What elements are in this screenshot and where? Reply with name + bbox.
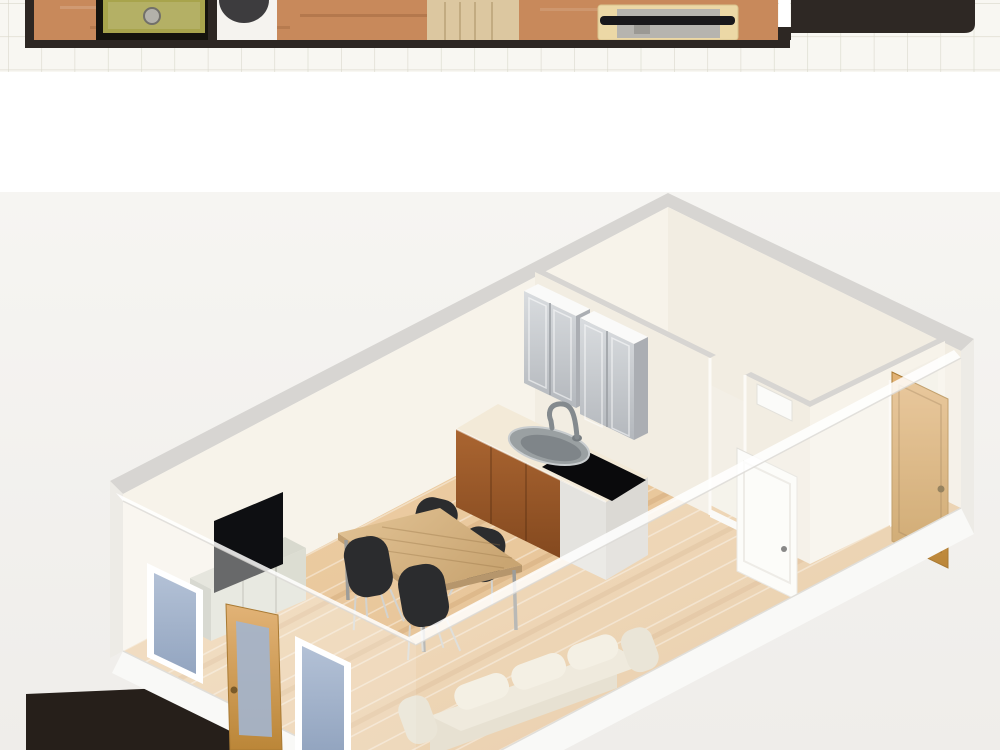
white-gap-band — [0, 72, 1000, 192]
glass-door-glass — [236, 621, 272, 737]
dark-room-2d[interactable] — [791, 0, 975, 33]
floorplan-page: Floor plan viewer — [0, 0, 1000, 750]
shower-drain — [144, 8, 160, 24]
door-glass-open[interactable] — [226, 604, 282, 750]
floorplan-canvas: Floor plan viewer — [0, 0, 1000, 750]
wall-2d-stub — [778, 27, 791, 40]
glass-door-knob — [231, 687, 238, 694]
wall-outer-edge — [961, 339, 974, 534]
wall-2d-divider — [208, 0, 217, 40]
cabinet-side — [634, 337, 648, 440]
wall-outer-edge — [110, 481, 123, 658]
wall-2d-bottom — [25, 40, 790, 48]
table-top-2d[interactable] — [427, 0, 519, 42]
doorway-gap-2d — [779, 0, 790, 27]
tv-stand-2d — [634, 25, 650, 34]
tv-2d[interactable] — [600, 16, 735, 25]
